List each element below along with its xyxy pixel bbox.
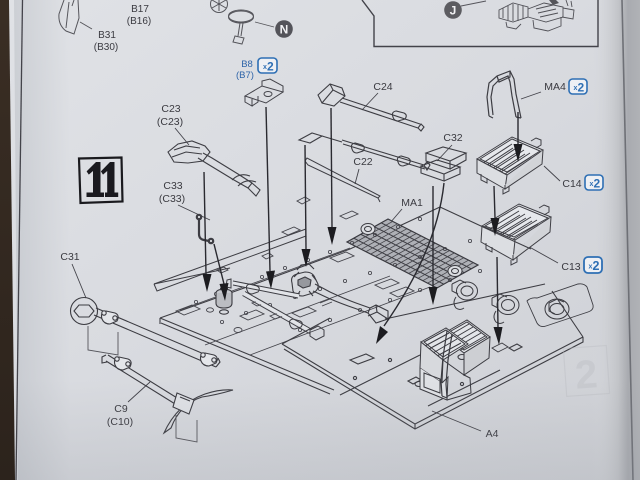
- svg-text:J: J: [450, 4, 457, 18]
- svg-text:2: 2: [578, 81, 585, 95]
- svg-text:(C33): (C33): [159, 193, 185, 205]
- svg-text:B8: B8: [241, 59, 253, 70]
- svg-text:C33: C33: [163, 180, 182, 192]
- svg-text:(C23): (C23): [157, 116, 183, 128]
- svg-text:C13: C13: [561, 261, 580, 273]
- svg-text:(B7): (B7): [236, 70, 254, 81]
- svg-text:2: 2: [594, 177, 601, 191]
- svg-text:N: N: [280, 23, 289, 37]
- svg-text:B31: B31: [98, 30, 116, 41]
- svg-text:(B16): (B16): [127, 16, 151, 27]
- svg-text:C23: C23: [161, 103, 180, 115]
- svg-text:(B30): (B30): [94, 42, 118, 53]
- svg-text:C32: C32: [443, 132, 462, 144]
- svg-text:C14: C14: [562, 178, 581, 190]
- svg-text:B17: B17: [131, 4, 149, 15]
- svg-text:2: 2: [593, 259, 600, 273]
- svg-text:C31: C31: [60, 251, 79, 263]
- svg-text:MA4: MA4: [544, 81, 566, 93]
- svg-text:MA1: MA1: [401, 197, 423, 209]
- svg-text:2: 2: [267, 60, 274, 74]
- svg-text:C24: C24: [373, 81, 392, 93]
- svg-text:C22: C22: [353, 156, 372, 168]
